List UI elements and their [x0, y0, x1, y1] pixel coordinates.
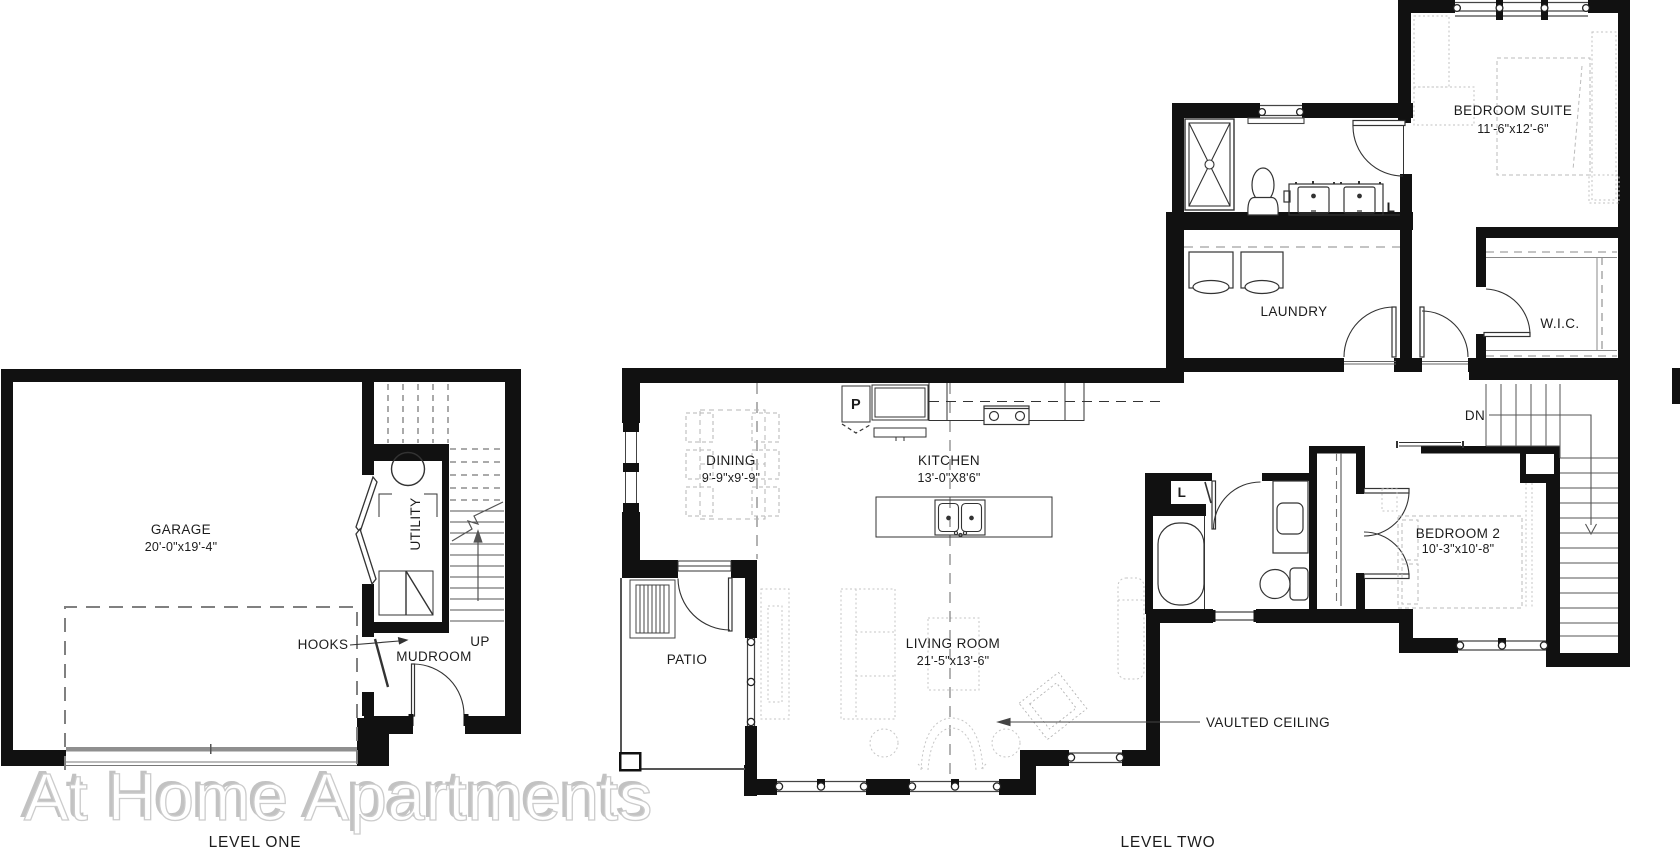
- svg-text:DINING: DINING: [706, 453, 756, 468]
- svg-text:HOOKS: HOOKS: [298, 637, 349, 652]
- svg-text:21'-5"x13'-6": 21'-5"x13'-6": [917, 654, 990, 668]
- svg-text:At Home Apartments: At Home Apartments: [24, 760, 653, 835]
- svg-text:L: L: [1178, 485, 1187, 500]
- svg-text:UP: UP: [470, 634, 490, 649]
- svg-text:W.I.C.: W.I.C.: [1540, 316, 1579, 331]
- svg-text:10'-3"x10'-8": 10'-3"x10'-8": [1422, 542, 1495, 556]
- svg-text:LAUNDRY: LAUNDRY: [1260, 304, 1327, 319]
- svg-text:GARAGE: GARAGE: [151, 522, 211, 537]
- svg-text:20'-0"x19'-4": 20'-0"x19'-4": [145, 540, 218, 554]
- svg-text:MUDROOM: MUDROOM: [396, 649, 472, 664]
- svg-text:P: P: [851, 397, 861, 413]
- svg-text:DN: DN: [1465, 408, 1485, 423]
- svg-text:11'-6"x12'-6": 11'-6"x12'-6": [1477, 122, 1549, 136]
- svg-text:BEDROOM SUITE: BEDROOM SUITE: [1454, 103, 1572, 118]
- svg-text:VAULTED CEILING: VAULTED CEILING: [1206, 715, 1330, 730]
- svg-text:9'-9"x9'-9": 9'-9"x9'-9": [702, 471, 760, 485]
- svg-text:PATIO: PATIO: [667, 652, 708, 667]
- svg-text:LIVING ROOM: LIVING ROOM: [906, 636, 1000, 651]
- svg-text:BEDROOM 2: BEDROOM 2: [1416, 526, 1501, 541]
- svg-text:UTILITY: UTILITY: [408, 497, 423, 550]
- svg-text:LEVEL TWO: LEVEL TWO: [1120, 834, 1215, 851]
- svg-text:L: L: [1387, 200, 1396, 215]
- svg-text:13'-0"X8'6": 13'-0"X8'6": [917, 471, 980, 485]
- svg-text:LEVEL ONE: LEVEL ONE: [209, 834, 302, 851]
- svg-text:KITCHEN: KITCHEN: [918, 453, 980, 468]
